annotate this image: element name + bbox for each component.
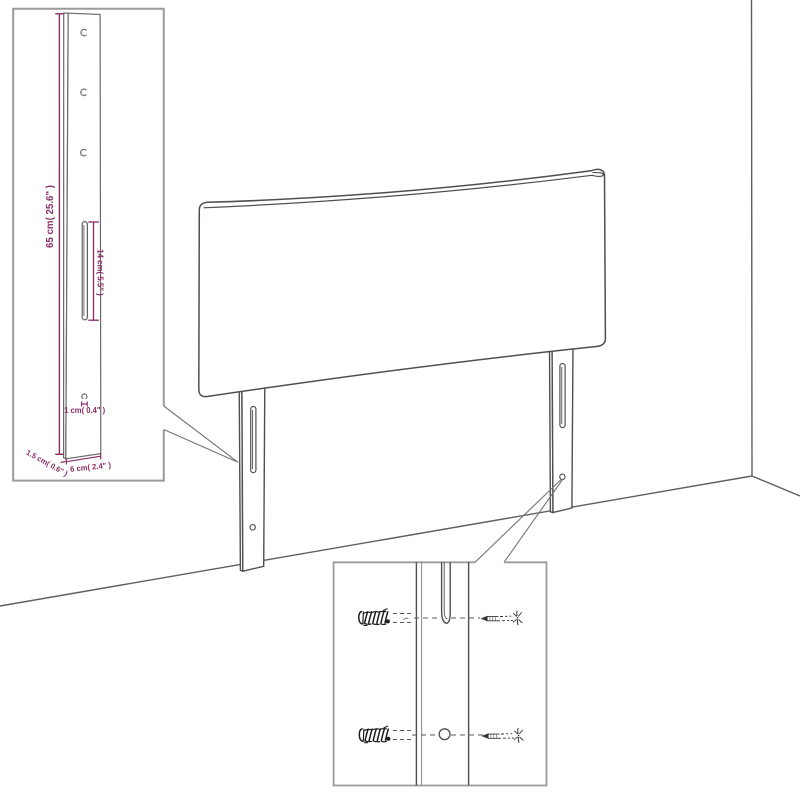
svg-text:14 cm( 5.5" ): 14 cm( 5.5" ) xyxy=(96,249,105,296)
svg-text:65 cm( 25.6" ): 65 cm( 25.6" ) xyxy=(45,185,56,248)
svg-text:1 cm( 0.4" ): 1 cm( 0.4" ) xyxy=(64,406,105,415)
